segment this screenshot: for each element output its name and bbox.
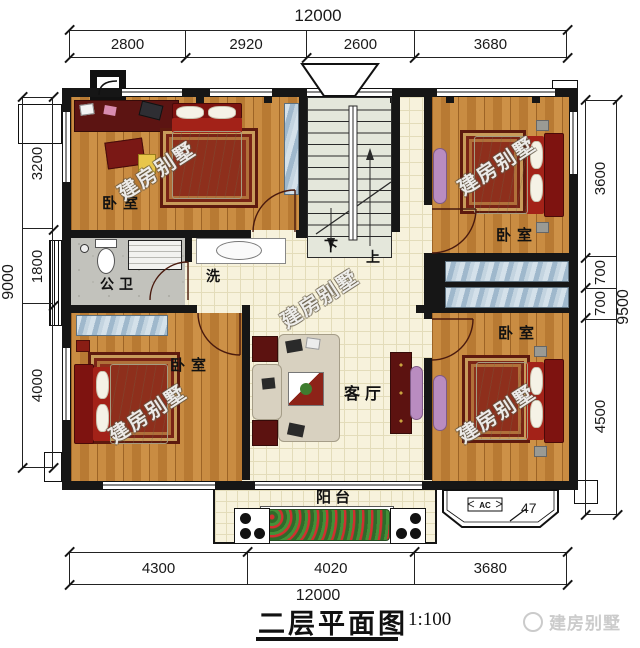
dim-value: 3680 (474, 560, 507, 577)
side-table (252, 420, 278, 446)
window-tab (532, 97, 540, 103)
wall-interior (296, 230, 307, 238)
pillow (530, 174, 543, 202)
wardrobe (284, 103, 299, 195)
brand-logo-text: 建房别墅 (549, 609, 621, 634)
brand-logo: 建房别墅 (523, 609, 621, 634)
flue-chimney (90, 70, 126, 104)
dim-value: 3200 (29, 147, 46, 180)
entry-door-window (307, 88, 392, 97)
wall-stub (416, 305, 432, 313)
dim-segment: 3680 (414, 31, 566, 57)
window-tab (264, 97, 272, 103)
flower-planter (264, 509, 390, 541)
stairs-floor (307, 97, 392, 258)
dim-value: 700 (593, 260, 610, 285)
window (62, 348, 71, 420)
wall-interior (424, 97, 432, 205)
dim-segment: 1800 (23, 228, 52, 302)
dim-value: 4020 (314, 560, 347, 577)
dimension-band-bottom: 4300 4020 3680 (69, 552, 567, 585)
dimension-band-top: 2800 2920 2600 3680 (69, 30, 567, 58)
dimension-band-left: 3200 1800 4000 (22, 97, 53, 468)
floor-plan-canvas: 12000 2800 2920 2600 3680 4300 4020 3680… (0, 0, 640, 648)
tv-screen (410, 366, 423, 420)
table-plant (300, 383, 312, 395)
dim-segment: 4000 (23, 303, 52, 467)
wash-area-label: 洗 (206, 266, 220, 286)
column-dot (410, 513, 421, 524)
stairs-up-label: 上 (366, 247, 380, 267)
dim-segment: 3200 (23, 98, 52, 228)
wall-interior (424, 358, 432, 480)
dimension-band-right: 3600 700 700 4500 (585, 100, 617, 515)
wash-basin (216, 241, 262, 260)
dim-value: 3680 (474, 36, 507, 53)
window-tab (196, 97, 204, 103)
bedroom-bottom-left-label: 卧室 (170, 354, 212, 375)
nightstand (536, 120, 549, 131)
dim-value: 4000 (29, 369, 46, 402)
wall-interior (424, 313, 432, 319)
dim-value: 2600 (344, 36, 377, 53)
dim-segment: 2600 (306, 31, 414, 57)
nightstand (534, 446, 547, 457)
dim-segment: 4300 (70, 553, 247, 584)
nightstand (534, 346, 547, 357)
wall-interior (392, 97, 400, 232)
column-dot (410, 528, 421, 539)
stairs-down-label: 下 (324, 236, 338, 256)
dim-segment: 2800 (70, 31, 185, 57)
shower-box (128, 240, 182, 270)
desk-paper (79, 103, 94, 116)
side-table (252, 336, 278, 362)
balcony-label: 阳台 (316, 486, 354, 507)
tv-dresser (433, 375, 447, 431)
window (569, 112, 578, 174)
dim-value: 4500 (593, 400, 610, 433)
sofa-chaise (252, 364, 282, 420)
window (437, 88, 555, 97)
dim-value: 2800 (111, 36, 144, 53)
dim-segment: 4500 (586, 319, 616, 514)
column-dot (240, 528, 251, 539)
dim-value: 2920 (229, 36, 262, 53)
window (62, 112, 71, 182)
cushion (261, 377, 275, 389)
wardrobe (445, 261, 569, 282)
dim-top-total: 12000 (69, 6, 567, 26)
bay-window: AC (443, 490, 558, 527)
pillow (96, 371, 109, 399)
balcony-column-left (234, 508, 270, 544)
dim-segment: 3600 (586, 101, 616, 256)
column-dot (396, 528, 407, 539)
wall-interior (299, 97, 307, 232)
pillow (208, 106, 236, 119)
floor-drain (80, 244, 89, 253)
dim-segment: 700 (586, 288, 616, 319)
column-dot (240, 513, 251, 524)
cushion (305, 337, 320, 350)
living-room-label: 客厅 (344, 380, 386, 404)
window-tab (446, 97, 454, 103)
nightstand (76, 340, 90, 352)
dim-value: 4300 (142, 560, 175, 577)
window-curtain (76, 315, 168, 336)
brand-logo-icon (523, 612, 543, 632)
dim-value: 700 (593, 291, 610, 316)
dim-value: 1800 (29, 250, 46, 283)
bay-offset-value: 47 (521, 500, 537, 516)
title-underline (256, 637, 398, 641)
window (122, 88, 182, 97)
bed-headboard (74, 364, 94, 444)
wall-interior (242, 305, 250, 480)
dim-value: 3600 (593, 162, 610, 195)
dim-left-total: 9000 (0, 264, 18, 300)
tv-dresser (433, 148, 447, 204)
window (210, 88, 272, 97)
bathroom-label: 公卫 (100, 274, 138, 294)
wall-interior (71, 230, 251, 238)
drawing-scale: 1:100 (408, 609, 451, 631)
window (103, 481, 215, 490)
dim-segment: 3680 (414, 553, 567, 584)
toilet-tank (95, 239, 117, 248)
bedroom-top-right-label: 卧室 (496, 224, 538, 245)
desk-item (103, 105, 116, 116)
dim-segment: 4020 (247, 553, 413, 584)
drawing-title: 二层平面图 (258, 602, 408, 641)
dim-segment: 2920 (185, 31, 306, 57)
balcony-column-right (390, 508, 426, 544)
bed-headboard (544, 133, 564, 217)
wall-interior (185, 238, 192, 262)
wardrobe (445, 287, 569, 308)
tv-cabinet (390, 352, 412, 434)
pillow (176, 106, 204, 119)
bedroom-bottom-right-label: 卧室 (498, 322, 540, 343)
bed-headboard (544, 359, 564, 443)
ac-label: AC (479, 501, 491, 510)
wall-interior (71, 305, 197, 313)
window-tab (390, 97, 398, 103)
dim-right-total: 9500 (615, 289, 633, 325)
toilet-bowl (97, 248, 115, 274)
column-dot (254, 528, 265, 539)
